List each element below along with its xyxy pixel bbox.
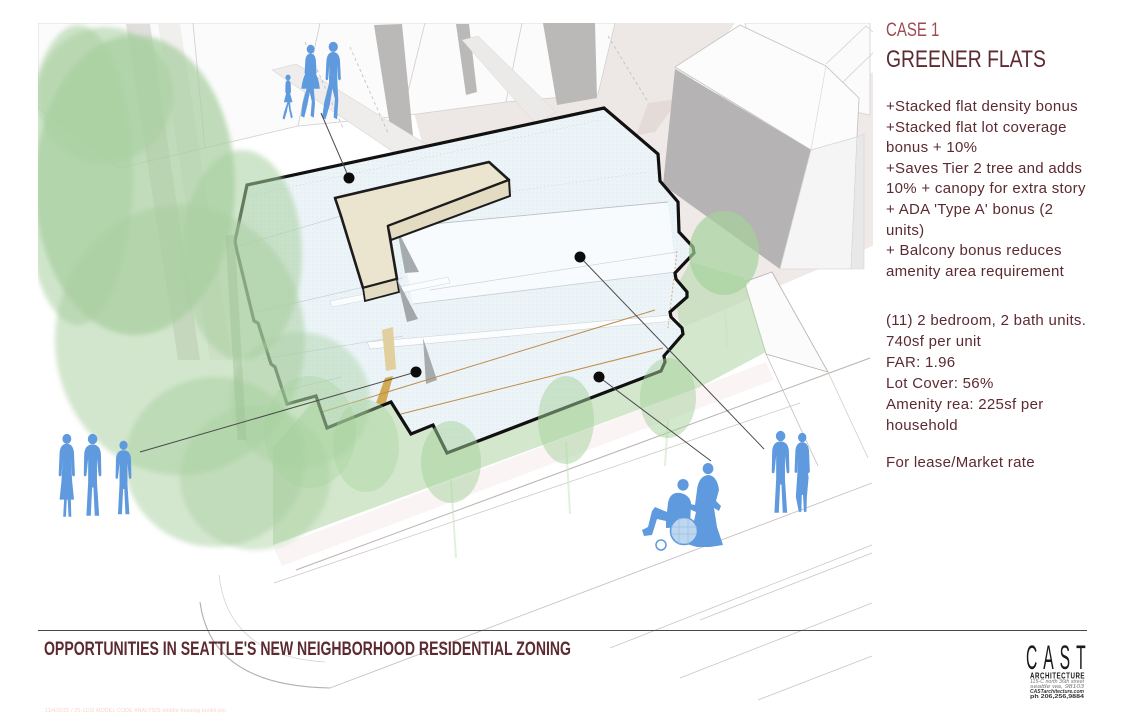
svg-text:ph 206,256,9884: ph 206,256,9884 bbox=[1030, 694, 1084, 700]
